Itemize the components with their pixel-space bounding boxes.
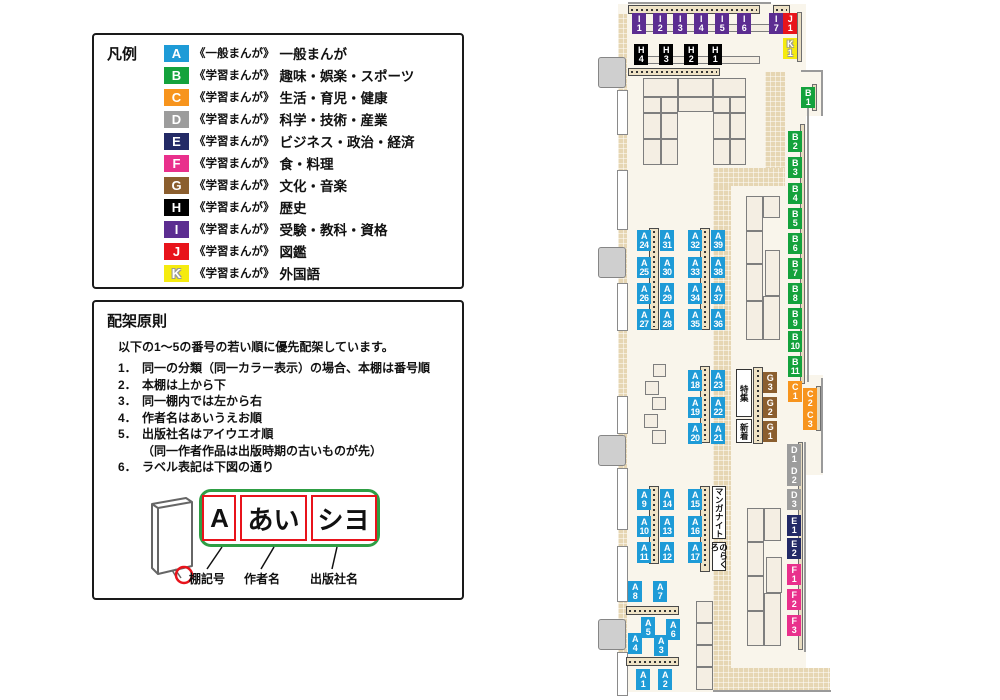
shelf-label-h2: H2 bbox=[684, 44, 698, 65]
map-wall-line bbox=[713, 690, 831, 692]
shelf-number: 1 bbox=[788, 24, 793, 33]
map-wall-line bbox=[801, 70, 823, 72]
shelf-number: 7 bbox=[658, 592, 663, 601]
principles-title: 配架原則 bbox=[107, 310, 167, 331]
legend-chip-k: K bbox=[164, 265, 189, 282]
map-table bbox=[645, 381, 659, 395]
rule-text: 出版社名はアイウエオ順 bbox=[142, 426, 273, 443]
shelf-number: 35 bbox=[690, 320, 699, 329]
map-table bbox=[746, 196, 763, 231]
shelf-number: 1 bbox=[788, 49, 793, 58]
rule-text: 同一棚内では左から右 bbox=[142, 393, 262, 410]
shelf-number: 29 bbox=[662, 294, 671, 303]
map-bookshelf-strip bbox=[628, 68, 720, 76]
map-table bbox=[746, 231, 763, 264]
shelf-label-a35: A35 bbox=[688, 309, 702, 330]
rule-5: 5．出版社名はアイウエオ順 bbox=[118, 426, 458, 443]
map-table bbox=[747, 542, 764, 576]
shelf-label-i3: I3 bbox=[673, 13, 687, 34]
shelf-number: 1 bbox=[768, 432, 773, 441]
shelf-number: 4 bbox=[639, 55, 644, 64]
shelf-label-f3: F3 bbox=[787, 615, 801, 636]
shelf-number: 2 bbox=[792, 476, 797, 485]
map-wall-segment bbox=[617, 283, 628, 331]
shelf-number: 3 bbox=[793, 168, 798, 177]
map-bookshelf-strip bbox=[753, 367, 763, 444]
rule-number: 6． bbox=[118, 459, 142, 476]
legend-scope-text: 《学習まんが》 bbox=[194, 155, 275, 171]
map-bookshelf-strip bbox=[626, 657, 679, 666]
legend-item-b: B《学習まんが》趣味・娯楽・スポーツ bbox=[94, 64, 462, 86]
shelf-number: 15 bbox=[690, 500, 699, 509]
shelf-label-a15: A15 bbox=[688, 489, 702, 510]
shelf-label-a3: A3 bbox=[654, 635, 668, 656]
shelf-number: 6 bbox=[793, 244, 798, 253]
map-wall-line bbox=[628, 2, 771, 4]
shelf-label-a12: A12 bbox=[660, 542, 674, 563]
map-wall-segment bbox=[617, 170, 628, 230]
map-table bbox=[652, 430, 666, 444]
shelf-label-i5: I5 bbox=[715, 13, 729, 34]
shelf-label-d1: D1 bbox=[787, 444, 801, 465]
map-table bbox=[713, 97, 730, 113]
shelf-label-c1: C1 bbox=[788, 381, 802, 402]
shelf-label-i1: I1 bbox=[632, 13, 646, 34]
rule-number: 1． bbox=[118, 360, 142, 377]
shelf-label-i6: I6 bbox=[737, 13, 751, 34]
rule-text: 同一の分類（同一カラー表示）の場合、本棚は番号順 bbox=[142, 360, 430, 377]
shelf-label-b11: B11 bbox=[788, 356, 802, 377]
map-table bbox=[747, 611, 764, 646]
shelf-number: 2 bbox=[768, 408, 773, 417]
shelf-label-a13: A13 bbox=[660, 516, 674, 537]
shelf-number: 33 bbox=[690, 268, 699, 277]
label-part-shelf-code: A bbox=[202, 495, 236, 541]
shelf-number: 13 bbox=[662, 527, 671, 536]
rule-number: 5． bbox=[118, 426, 142, 443]
shelf-label-b1: B1 bbox=[801, 87, 815, 108]
map-table bbox=[653, 364, 666, 377]
legend-category-label: 生活・育児・健康 bbox=[280, 87, 388, 107]
legend-scope-text: 《学習まんが》 bbox=[194, 133, 275, 149]
principles-intro: 以下の1～5の番号の若い順に優先配架しています。 bbox=[118, 338, 394, 355]
map-door bbox=[598, 619, 626, 650]
shelf-label-a24: A24 bbox=[637, 230, 651, 251]
shelf-number: 12 bbox=[662, 553, 671, 562]
map-table bbox=[747, 576, 764, 611]
legend-chip-e: E bbox=[164, 133, 189, 150]
shelf-label-a2: A2 bbox=[658, 669, 672, 690]
shelf-label-a4: A4 bbox=[628, 633, 642, 654]
shelf-number: 11 bbox=[791, 367, 800, 376]
shelf-number: 7 bbox=[774, 24, 779, 33]
shelf-label-a22: A22 bbox=[711, 397, 725, 418]
shelf-label-b4: B4 bbox=[788, 183, 802, 204]
legend-category-label: 趣味・娯楽・スポーツ bbox=[280, 65, 415, 85]
shelf-label-a8: A8 bbox=[628, 581, 642, 602]
shelf-number: 7 bbox=[793, 269, 798, 278]
floor-map: I1I2I3I4I5I6I7J1K1H4H3H2H1B1B2B3B4B5B6B7… bbox=[595, 0, 840, 700]
shelf-label-a38: A38 bbox=[711, 257, 725, 278]
shelf-number: 4 bbox=[793, 194, 798, 203]
map-table bbox=[730, 113, 746, 139]
map-table bbox=[764, 508, 781, 541]
legend-item-i: I《学習まんが》受験・教科・資格 bbox=[94, 218, 462, 240]
legend-category-label: 歴史 bbox=[280, 197, 307, 217]
shelf-label-a29: A29 bbox=[660, 283, 674, 304]
legend-scope-text: 《学習まんが》 bbox=[194, 199, 275, 215]
legend-chip-d: D bbox=[164, 111, 189, 128]
legend-scope-text: 《学習まんが》 bbox=[194, 265, 275, 281]
shelf-number: 3 bbox=[664, 55, 669, 64]
legend-category-label: 科学・技術・産業 bbox=[280, 109, 388, 129]
map-wall-hatch bbox=[713, 668, 830, 690]
label-part-author: あい bbox=[240, 495, 306, 541]
label-part-publisher: シヨ bbox=[311, 495, 377, 541]
shelf-label-a14: A14 bbox=[660, 489, 674, 510]
shelf-label-a33: A33 bbox=[688, 257, 702, 278]
shelf-number: 8 bbox=[633, 592, 638, 601]
map-table bbox=[730, 97, 746, 113]
caption-publisher: 出版社名 bbox=[310, 570, 358, 587]
legend-scope-text: 《学習まんが》 bbox=[194, 243, 275, 259]
legend-scope-text: 《学習まんが》 bbox=[194, 67, 275, 83]
shelf-label-h3: H3 bbox=[659, 44, 673, 65]
shelf-label-a21: A21 bbox=[711, 423, 725, 444]
caption-author: 作者名 bbox=[244, 570, 280, 587]
shelf-label-a34: A34 bbox=[688, 283, 702, 304]
shelf-label-b2: B2 bbox=[788, 131, 802, 152]
map-wall-line bbox=[821, 70, 823, 116]
map-door bbox=[598, 247, 626, 278]
shelf-label-a28: A28 bbox=[660, 309, 674, 330]
map-wall-segment bbox=[617, 90, 628, 135]
map-table bbox=[747, 508, 764, 542]
map-table bbox=[763, 196, 780, 218]
legend-scope-text: 《学習まんが》 bbox=[194, 221, 275, 237]
map-table bbox=[713, 139, 730, 165]
shelf-number: 6 bbox=[742, 24, 747, 33]
rule-text: 作者名はあいうえお順 bbox=[142, 410, 262, 427]
legend-chip-b: B bbox=[164, 67, 189, 84]
map-table bbox=[696, 623, 713, 645]
rule-3: 3．同一棚内では左から右 bbox=[118, 393, 458, 410]
map-table bbox=[678, 97, 713, 112]
shelf-number: 36 bbox=[713, 320, 722, 329]
shelf-label-f2: F2 bbox=[787, 589, 801, 610]
shelf-label-b10: B10 bbox=[788, 331, 802, 352]
map-wall-segment bbox=[617, 396, 628, 434]
shelf-number: 3 bbox=[659, 646, 664, 655]
shelf-label-a1: A1 bbox=[636, 669, 650, 690]
legend-chip-a: A bbox=[164, 45, 189, 62]
map-wall-line bbox=[807, 96, 809, 382]
map-table bbox=[763, 296, 780, 340]
shelf-label-h4: H4 bbox=[634, 44, 648, 65]
shelf-number: 4 bbox=[633, 644, 638, 653]
shelf-label-a6: A6 bbox=[666, 619, 680, 640]
map-table bbox=[678, 78, 713, 97]
map-area-label-2: マンガナイト bbox=[712, 486, 726, 539]
shelf-number: 3 bbox=[768, 383, 773, 392]
shelf-label-a36: A36 bbox=[711, 309, 725, 330]
shelf-label-a10: A10 bbox=[637, 516, 651, 537]
shelf-label-a27: A27 bbox=[637, 309, 651, 330]
shelf-label-d3: D3 bbox=[787, 489, 801, 510]
legend-scope-text: 《学習まんが》 bbox=[194, 89, 275, 105]
shelf-label-b9: B9 bbox=[788, 308, 802, 329]
spine-label-frame: A あい シヨ bbox=[199, 489, 380, 547]
rule-6: 6．ラベル表記は下図の通り bbox=[118, 459, 458, 476]
shelf-number: 10 bbox=[790, 342, 799, 351]
shelf-number: 19 bbox=[690, 408, 699, 417]
shelf-label-g3: G3 bbox=[763, 372, 777, 393]
rule-text: ラベル表記は下図の通り bbox=[142, 459, 274, 476]
legend-scope-text: 《学習まんが》 bbox=[194, 111, 275, 127]
shelf-number: 2 bbox=[792, 600, 797, 609]
shelf-label-a23: A23 bbox=[711, 370, 725, 391]
legend-scope-text: 《一般まんが》 bbox=[194, 45, 275, 61]
map-area-label-3: のらくろ bbox=[712, 542, 726, 571]
legend-category-label: 一般まんが bbox=[280, 43, 348, 63]
map-table bbox=[713, 78, 746, 97]
shelf-label-a19: A19 bbox=[688, 397, 702, 418]
rule-number: 4． bbox=[118, 410, 142, 427]
shelf-number: 2 bbox=[793, 142, 798, 151]
shelf-number: 3 bbox=[792, 500, 797, 509]
legend-item-a: A《一般まんが》一般まんが bbox=[94, 42, 462, 64]
shelf-number: 18 bbox=[690, 381, 699, 390]
shelf-number: 5 bbox=[646, 628, 651, 637]
shelf-number: 1 bbox=[806, 98, 811, 107]
shelf-label-j1: J1 bbox=[783, 13, 797, 34]
map-table bbox=[766, 557, 782, 593]
shelf-number: 34 bbox=[690, 294, 699, 303]
shelf-number: 24 bbox=[639, 241, 648, 250]
caption-shelf-code: 棚記号 bbox=[189, 570, 225, 587]
shelf-number: 2 bbox=[658, 24, 663, 33]
legend-item-c: C《学習まんが》生活・育児・健康 bbox=[94, 86, 462, 108]
map-table bbox=[713, 113, 730, 139]
shelf-number: 5 bbox=[720, 24, 725, 33]
shelf-number: 39 bbox=[713, 241, 722, 250]
shelf-number: 10 bbox=[639, 527, 648, 536]
legend-box: 凡例 A《一般まんが》一般まんがB《学習まんが》趣味・娯楽・スポーツC《学習まん… bbox=[92, 33, 464, 289]
map-table bbox=[643, 139, 661, 165]
principles-rules: 1．同一の分類（同一カラー表示）の場合、本棚は番号順2．本棚は上から下3．同一棚… bbox=[118, 360, 458, 476]
map-wall-line bbox=[804, 442, 806, 652]
shelf-label-b6: B6 bbox=[788, 233, 802, 254]
shelf-number: 11 bbox=[640, 553, 649, 562]
legend-item-e: E《学習まんが》ビジネス・政治・経済 bbox=[94, 130, 462, 152]
manga-library-floor-map-page: 凡例 A《一般まんが》一般まんがB《学習まんが》趣味・娯楽・スポーツC《学習まん… bbox=[0, 0, 1000, 700]
map-area-label-0: 特集 bbox=[736, 369, 752, 417]
map-table bbox=[661, 97, 678, 113]
legend-chip-i: I bbox=[164, 221, 189, 238]
shelf-number: 23 bbox=[713, 381, 722, 390]
shelf-label-a5: A5 bbox=[641, 617, 655, 638]
shelf-label-g1: G1 bbox=[763, 421, 777, 442]
shelf-label-g2: G2 bbox=[763, 397, 777, 418]
shelf-label-k1: K1 bbox=[783, 38, 797, 59]
shelf-label-a30: A30 bbox=[660, 257, 674, 278]
shelf-label-b8: B8 bbox=[788, 283, 802, 304]
map-door bbox=[598, 435, 626, 466]
shelf-label-a39: A39 bbox=[711, 230, 725, 251]
rule-number: 3． bbox=[118, 393, 142, 410]
shelf-number: 25 bbox=[639, 268, 648, 277]
shelf-label-i4: I4 bbox=[694, 13, 708, 34]
shelf-label-a9: A9 bbox=[637, 489, 651, 510]
shelf-label-c2: C2 bbox=[803, 388, 817, 409]
shelf-label-b3: B3 bbox=[788, 157, 802, 178]
shelf-label-f1: F1 bbox=[787, 564, 801, 585]
legend-item-j: J《学習まんが》図鑑 bbox=[94, 240, 462, 262]
map-wall-segment bbox=[617, 546, 628, 602]
shelf-number: 1 bbox=[792, 575, 797, 584]
map-table bbox=[730, 139, 746, 165]
shelf-number: 1 bbox=[793, 392, 798, 401]
map-table bbox=[696, 601, 713, 623]
shelf-number: 20 bbox=[690, 434, 699, 443]
shelf-label-a37: A37 bbox=[711, 283, 725, 304]
shelf-number: 9 bbox=[793, 319, 798, 328]
shelf-number: 22 bbox=[713, 408, 722, 417]
shelf-number: 26 bbox=[639, 294, 648, 303]
shelf-number: 3 bbox=[808, 420, 813, 429]
legend-chip-c: C bbox=[164, 89, 189, 106]
shelf-number: 28 bbox=[662, 320, 671, 329]
shelf-number: 6 bbox=[671, 630, 676, 639]
map-table bbox=[644, 414, 658, 428]
map-wall-line bbox=[821, 378, 823, 473]
map-table bbox=[764, 593, 781, 646]
shelf-number: 4 bbox=[699, 24, 704, 33]
shelf-label-i7: I7 bbox=[769, 13, 783, 34]
shelf-number: 30 bbox=[662, 268, 671, 277]
shelf-number: 31 bbox=[662, 241, 671, 250]
rule-text: 本棚は上から下 bbox=[142, 377, 226, 394]
map-table bbox=[661, 113, 678, 139]
legend-category-label: 食・料理 bbox=[280, 153, 334, 173]
map-table bbox=[746, 301, 763, 340]
shelf-label-a7: A7 bbox=[653, 581, 667, 602]
map-wall-segment bbox=[617, 468, 628, 530]
principles-box: 配架原則 以下の1～5の番号の若い順に優先配架しています。 1．同一の分類（同一… bbox=[92, 300, 464, 600]
legend-category-label: 図鑑 bbox=[280, 241, 307, 261]
legend-chip-j: J bbox=[164, 243, 189, 260]
rule-1: 1．同一の分類（同一カラー表示）の場合、本棚は番号順 bbox=[118, 360, 458, 377]
legend-category-label: 文化・音楽 bbox=[280, 175, 348, 195]
shelf-number: 14 bbox=[662, 500, 671, 509]
legend-rows: A《一般まんが》一般まんがB《学習まんが》趣味・娯楽・スポーツC《学習まんが》生… bbox=[94, 42, 462, 284]
map-table bbox=[765, 250, 780, 296]
shelf-number: 32 bbox=[690, 241, 699, 250]
shelf-number: 2 bbox=[792, 549, 797, 558]
legend-scope-text: 《学習まんが》 bbox=[194, 177, 275, 193]
legend-chip-f: F bbox=[164, 155, 189, 172]
shelf-number: 16 bbox=[690, 527, 699, 536]
shelf-label-a11: A11 bbox=[637, 542, 651, 563]
shelf-label-a17: A17 bbox=[688, 542, 702, 563]
legend-item-f: F《学習まんが》食・料理 bbox=[94, 152, 462, 174]
shelf-number: 3 bbox=[792, 626, 797, 635]
shelf-number: 8 bbox=[793, 294, 798, 303]
shelf-number: 27 bbox=[639, 320, 648, 329]
rule-number: 2． bbox=[118, 377, 142, 394]
map-area-label-1: 新着 bbox=[736, 419, 752, 443]
shelf-number: 9 bbox=[642, 500, 647, 509]
shelf-number: 17 bbox=[690, 553, 699, 562]
map-table bbox=[652, 397, 666, 410]
shelf-number: 1 bbox=[792, 455, 797, 464]
rule-sub-text: （同一作者作品は出版時期の古いものが先） bbox=[118, 443, 458, 460]
shelf-number: 2 bbox=[663, 680, 668, 689]
shelf-number: 1 bbox=[641, 680, 646, 689]
map-table bbox=[661, 139, 678, 165]
legend-category-label: ビジネス・政治・経済 bbox=[280, 131, 415, 151]
shelf-number: 2 bbox=[689, 55, 694, 64]
shelf-number: 38 bbox=[713, 268, 722, 277]
map-wall-hatch bbox=[765, 72, 785, 176]
shelf-number: 37 bbox=[713, 294, 722, 303]
shelf-label-c3: C3 bbox=[803, 409, 817, 430]
shelf-number: 2 bbox=[808, 399, 813, 408]
shelf-label-a18: A18 bbox=[688, 370, 702, 391]
map-table bbox=[696, 645, 713, 667]
shelf-number: 21 bbox=[713, 434, 722, 443]
shelf-label-i2: I2 bbox=[653, 13, 667, 34]
map-table bbox=[643, 78, 678, 97]
map-table bbox=[746, 264, 763, 301]
shelf-label-e1: E1 bbox=[787, 515, 801, 536]
legend-chip-h: H bbox=[164, 199, 189, 216]
rule-2: 2．本棚は上から下 bbox=[118, 377, 458, 394]
legend-item-g: G《学習まんが》文化・音楽 bbox=[94, 174, 462, 196]
legend-category-label: 外国語 bbox=[280, 263, 321, 283]
map-table bbox=[643, 97, 661, 113]
map-wall-shelf bbox=[797, 12, 802, 62]
shelf-label-a31: A31 bbox=[660, 230, 674, 251]
shelf-number: 5 bbox=[793, 219, 798, 228]
shelf-label-b5: B5 bbox=[788, 208, 802, 229]
shelf-label-a26: A26 bbox=[637, 283, 651, 304]
shelf-label-a20: A20 bbox=[688, 423, 702, 444]
label-diagram: A あい シヨ 棚記号 作者名 出版社名 bbox=[134, 487, 454, 599]
shelf-label-e2: E2 bbox=[787, 538, 801, 559]
shelf-label-b7: B7 bbox=[788, 258, 802, 279]
shelf-number: 1 bbox=[713, 55, 718, 64]
legend-item-h: H《学習まんが》歴史 bbox=[94, 196, 462, 218]
shelf-number: 1 bbox=[637, 24, 642, 33]
shelf-label-a16: A16 bbox=[688, 516, 702, 537]
shelf-label-a25: A25 bbox=[637, 257, 651, 278]
shelf-number: 1 bbox=[792, 526, 797, 535]
map-door bbox=[598, 57, 626, 88]
legend-category-label: 受験・教科・資格 bbox=[280, 219, 388, 239]
map-bookshelf-strip bbox=[626, 606, 679, 615]
legend-item-k: K《学習まんが》外国語 bbox=[94, 262, 462, 284]
rule-4: 4．作者名はあいうえお順 bbox=[118, 410, 458, 427]
map-table bbox=[696, 667, 713, 690]
map-wall-hatch bbox=[713, 168, 785, 186]
legend-item-d: D《学習まんが》科学・技術・産業 bbox=[94, 108, 462, 130]
shelf-label-h1: H1 bbox=[708, 44, 722, 65]
shelf-label-a32: A32 bbox=[688, 230, 702, 251]
shelf-number: 3 bbox=[678, 24, 683, 33]
shelf-label-d2: D2 bbox=[787, 465, 801, 486]
legend-chip-g: G bbox=[164, 177, 189, 194]
